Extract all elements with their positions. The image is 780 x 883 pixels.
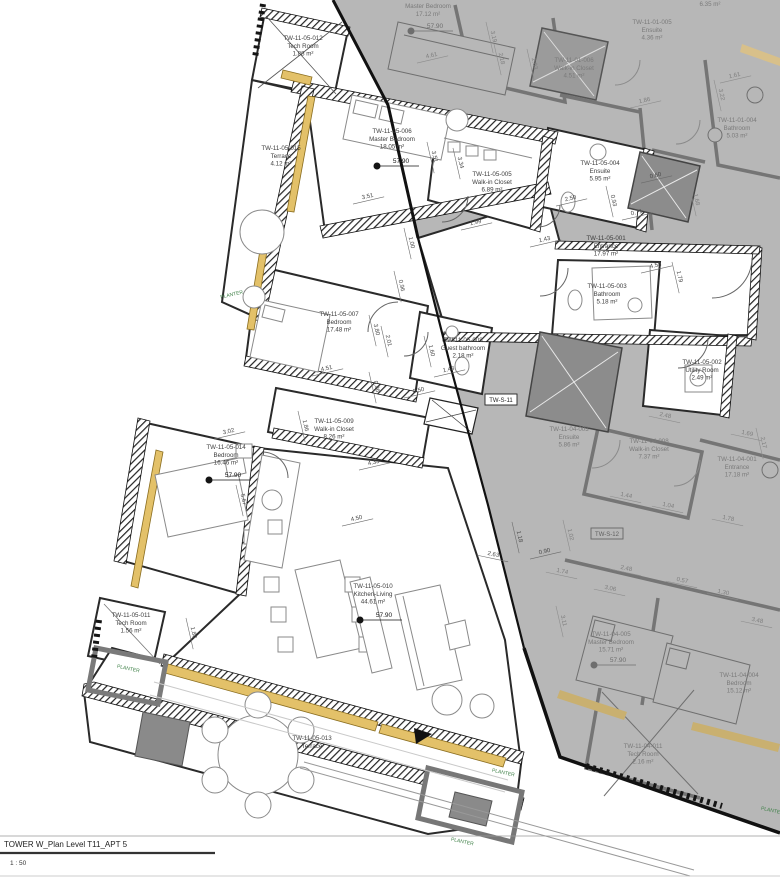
- spot-elevation-value: 57.90: [225, 472, 242, 479]
- room-label: 5.18 m²: [597, 299, 618, 306]
- room-label: TW-11-04-011: [624, 743, 663, 750]
- room-label: Bedroom: [726, 680, 751, 687]
- room-label: 15.71 m²: [599, 647, 623, 654]
- room-label: 6.35 m²: [700, 1, 721, 8]
- room-label: 5.03 m²: [727, 133, 748, 140]
- room-label: Entrance: [594, 243, 619, 250]
- room-label: 1.56 m²: [121, 628, 142, 635]
- spot-elevation-symbol: [374, 163, 381, 170]
- room-label: 5.86 m²: [559, 442, 580, 449]
- room-label: Terrace: [271, 153, 292, 160]
- spot-elevation-symbol: [206, 477, 213, 484]
- floor-plan-svg: TW-11-05-012Tech Room1.88 m²TW-11-05-015…: [0, 0, 780, 883]
- room-label: TW-11-01-005: [632, 19, 672, 26]
- room-label: TW-11-05-013: [292, 735, 332, 742]
- floor-plan-canvas: TW-11-05-012Tech Room1.88 m²TW-11-05-015…: [0, 0, 780, 883]
- room-guest-bathroom: [410, 312, 492, 394]
- spot-elevation-value: 57.90: [610, 657, 627, 664]
- room-label: 18.05 m²: [380, 144, 404, 151]
- room-label: Master Bedroom: [369, 136, 415, 143]
- shaft-tag: TW-S-11: [489, 398, 513, 404]
- room-label: Terrace: [302, 743, 323, 750]
- room-label: Entrance: [725, 464, 750, 471]
- room-label: TW-11-05-009: [314, 418, 354, 425]
- room-label: Master Bedroom: [588, 639, 634, 646]
- room-label: Utility Room: [685, 367, 718, 374]
- room-label: 44.61 m²: [361, 599, 385, 606]
- room-label: TW-11-05-004: [580, 160, 620, 167]
- room-label: Kitchen-Living: [354, 591, 393, 598]
- room-label: TW-11-05-001: [586, 235, 626, 242]
- room-label: Walk-in Closet: [554, 65, 594, 72]
- room-label: TW-11-01-004: [717, 117, 757, 124]
- room-label: 16.46 m²: [214, 460, 238, 467]
- room-label: Bathroom: [594, 291, 621, 298]
- room-label: Walk-in Closet: [314, 426, 354, 433]
- room-label: TW-11-05-007: [319, 311, 359, 318]
- room-label: Tech Room: [627, 751, 658, 758]
- plan-title: TOWER W_Plan Level T11_APT 5: [4, 840, 128, 849]
- plan-scale: 1 : 50: [10, 860, 27, 867]
- room-label: TW-11-05-015: [261, 145, 301, 152]
- room-label: Tech Room: [287, 43, 318, 50]
- room-label: TW-11-05-011: [112, 612, 151, 619]
- room-label: 8.26 m²: [324, 434, 345, 441]
- room-label: 17.18 m²: [725, 472, 749, 479]
- spot-elevation-symbol: [408, 28, 415, 35]
- room-label: 17.97 m²: [594, 251, 618, 258]
- room-label: Ensuite: [642, 27, 663, 34]
- room-label: 1.88 m²: [293, 51, 314, 58]
- room-label: TW-11-05-012: [283, 35, 323, 42]
- room-label: TW-11-05-003: [587, 283, 627, 290]
- room-label: 7.37 m²: [639, 454, 660, 461]
- room-label: Guest bathroom: [441, 345, 485, 352]
- room-label: 2.16 m²: [633, 759, 654, 766]
- kitchen-sink: [262, 490, 282, 510]
- room-label: 6.89 m²: [482, 187, 503, 194]
- room-label: Tech Room: [115, 620, 146, 627]
- spot-elevation-value: 57.90: [427, 23, 444, 30]
- sink: [590, 144, 606, 160]
- room-label: TW-11-01-006: [554, 57, 594, 64]
- room-label: TW-11-05-010: [353, 583, 393, 590]
- room-label: Bedroom: [213, 452, 238, 459]
- spot-elevation-value: 57.90: [376, 612, 393, 619]
- room-label: Walk-in Closet: [472, 179, 512, 186]
- room-label: TW-11-05-006: [372, 128, 412, 135]
- spot-elevation-symbol: [591, 662, 598, 669]
- room-label: 5.95 m²: [590, 176, 611, 183]
- room-label: TW-11-04-004: [719, 672, 759, 679]
- side-table: [446, 109, 468, 131]
- room-label: Bathroom: [724, 125, 751, 132]
- room-label: 17.12 m²: [416, 11, 440, 18]
- room-label: 4.51 m²: [564, 73, 585, 80]
- shaft-tag: TW-S-12: [595, 532, 620, 538]
- room-label: TW-11-05-002: [682, 359, 722, 366]
- room-label: TW-11-05-014: [206, 444, 246, 451]
- room-label: 4.12 m²: [271, 161, 292, 168]
- spot-elevation-value: 57.90: [393, 158, 410, 165]
- room-label: TW-11-05-008: [443, 337, 483, 344]
- room-label: TW-11-04-008: [629, 438, 669, 445]
- room-label: TW-11-04-001: [717, 456, 757, 463]
- room-label: 15.12 m²: [727, 688, 751, 695]
- room-label: 2.18 m²: [453, 353, 474, 360]
- room-label: Master Bedroom: [405, 3, 451, 10]
- room-label: Walk-in Closet: [629, 446, 669, 453]
- terrace-table: [218, 715, 298, 795]
- room-label: Ensuite: [559, 434, 580, 441]
- room-label: Bedroom: [326, 319, 351, 326]
- room-label: 2.49 m²: [692, 375, 713, 382]
- room-label: 4.36 m²: [642, 35, 663, 42]
- room-label: 17.48 m²: [327, 327, 351, 334]
- room-label: TW-11-04-005: [591, 631, 631, 638]
- spot-elevation-symbol: [357, 617, 364, 624]
- room-label: Ensuite: [590, 168, 611, 175]
- room-label: TW-11-05-005: [472, 171, 512, 178]
- room-label: TW-11-04-003: [549, 426, 589, 433]
